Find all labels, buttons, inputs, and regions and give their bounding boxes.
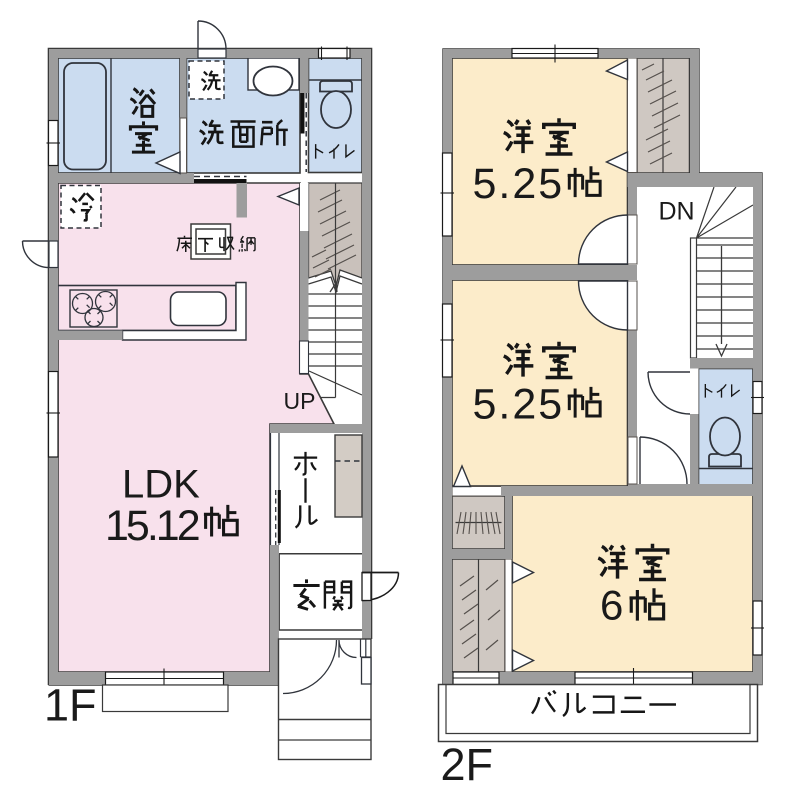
- svg-text:5.25: 5.25: [473, 381, 565, 429]
- svg-text:DN: DN: [659, 198, 695, 226]
- svg-text:1F: 1F: [44, 680, 97, 731]
- svg-text:2F: 2F: [441, 739, 494, 790]
- svg-text:LDK: LDK: [122, 463, 200, 507]
- svg-text:6: 6: [600, 582, 623, 629]
- svg-text:15.12: 15.12: [105, 502, 199, 550]
- svg-text:5.25: 5.25: [473, 160, 565, 208]
- svg-text:UP: UP: [284, 388, 316, 414]
